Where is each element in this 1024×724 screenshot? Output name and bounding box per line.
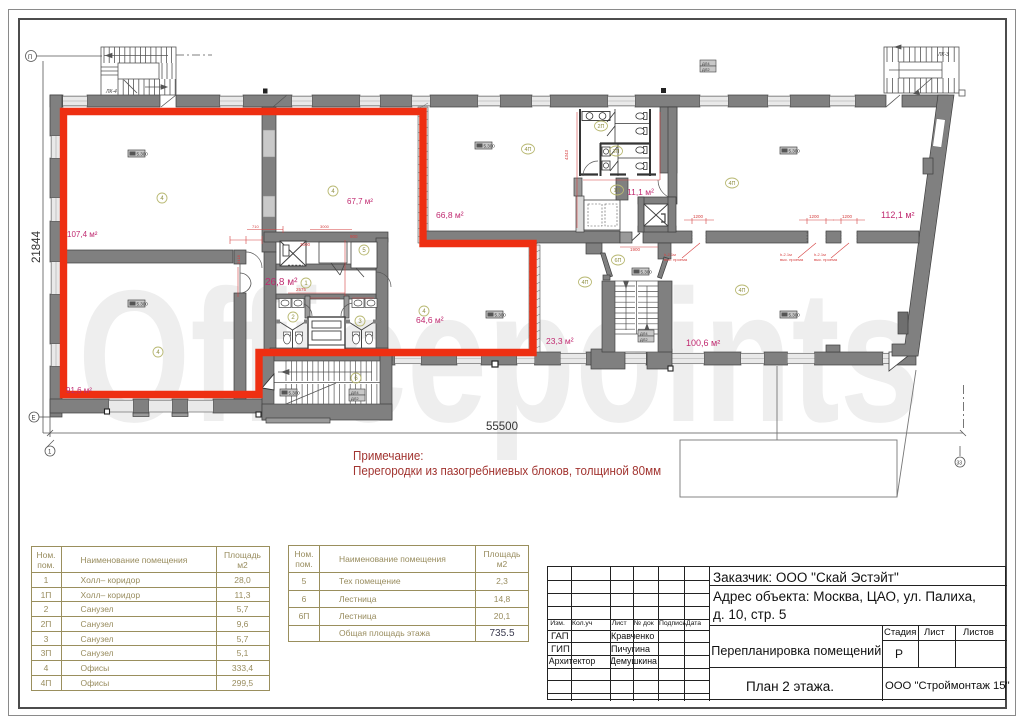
svg-text:5.300: 5.300 [484,144,496,149]
svg-text:ДЛ2: ДЛ2 [640,337,648,342]
svg-text:5.300: 5.300 [289,391,301,396]
svg-text:112,1 м²: 112,1 м² [881,210,915,220]
svg-text:5.300: 5.300 [789,313,801,318]
svg-text:1: 1 [48,450,52,456]
svg-text:3000: 3000 [320,224,330,229]
svg-text:23,3 м²: 23,3 м² [546,336,574,346]
svg-text:1900: 1900 [630,247,641,252]
svg-text:ЛК-3: ЛК-3 [937,52,949,58]
svg-text:66,8 м²: 66,8 м² [436,210,464,220]
svg-text:выс. проема: выс. проема [664,257,688,262]
svg-text:5.300: 5.300 [789,149,801,154]
svg-text:4П: 4П [524,147,531,153]
svg-text:1П: 1П [613,188,620,194]
svg-text:55500: 55500 [486,421,518,433]
svg-text:900: 900 [350,234,358,239]
svg-text:ЛК-4: ЛК-4 [105,89,117,95]
svg-text:67,7 м²: 67,7 м² [347,197,373,206]
svg-text:710: 710 [252,224,259,229]
svg-text:3П: 3П [612,149,619,155]
svg-text:64,6 м²: 64,6 м² [416,315,444,325]
svg-text:выс. проема: выс. проема [814,257,838,262]
svg-text:21844: 21844 [31,230,43,263]
svg-text:5.300: 5.300 [137,302,149,307]
svg-text:ДЛ4: ДЛ4 [702,61,710,66]
svg-text:11,1 м²: 11,1 м² [627,187,654,197]
svg-text:2418: 2418 [236,254,241,264]
svg-text:1200: 1200 [842,214,853,219]
svg-text:33: 33 [957,461,963,467]
svg-text:П: П [28,55,32,61]
svg-text:2575: 2575 [296,287,307,292]
svg-text:3000: 3000 [300,242,311,247]
svg-text:4П: 4П [738,288,745,294]
svg-text:2П: 2П [597,124,604,130]
svg-text:5.300: 5.300 [495,313,507,318]
svg-text:ДЛ2: ДЛ2 [351,396,359,401]
svg-text:4: 4 [160,196,164,202]
svg-text:100,6 м²: 100,6 м² [686,338,720,348]
svg-text:4П: 4П [581,280,588,286]
svg-text:4: 4 [331,189,335,195]
svg-text:ДЛ4: ДЛ4 [640,331,648,336]
svg-text:6П: 6П [614,258,621,264]
svg-text:5.300: 5.300 [137,152,149,157]
svg-text:26,8 м²: 26,8 м² [265,277,298,288]
svg-text:ДЛ2: ДЛ2 [702,67,710,72]
svg-text:91,6 м²: 91,6 м² [66,386,92,395]
svg-text:Е: Е [32,416,36,422]
svg-text:4П: 4П [728,181,735,187]
svg-text:4343: 4343 [564,149,569,160]
svg-text:107,4 м²: 107,4 м² [67,230,98,239]
svg-text:ДЛ4: ДЛ4 [351,390,359,395]
svg-text:1200: 1200 [693,214,704,219]
svg-text:выс. проема: выс. проема [780,257,804,262]
svg-text:5.300: 5.300 [641,270,653,275]
svg-text:1200: 1200 [809,214,820,219]
